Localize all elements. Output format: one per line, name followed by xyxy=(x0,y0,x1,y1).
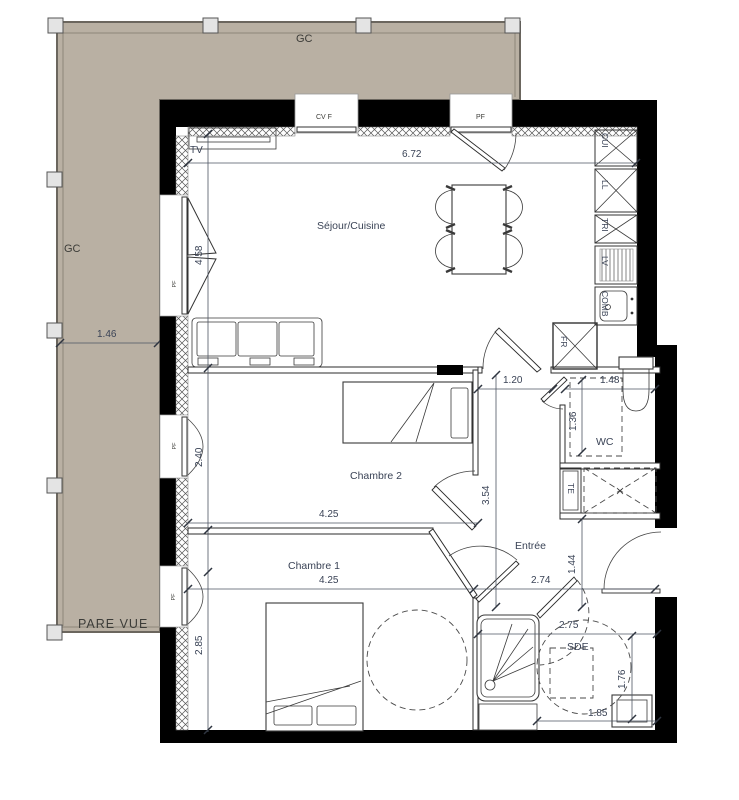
door-bedroom1-terrace: PF xyxy=(160,566,203,627)
dim-living-depth: 4.58 xyxy=(194,245,205,265)
dim-bedroom1-width: 4.25 xyxy=(319,575,339,586)
wall-bedroom2-bedroom1 xyxy=(188,528,433,534)
insulation-hatch xyxy=(358,127,450,136)
door-bedroom1-label: PF xyxy=(171,593,177,601)
door-swing-arc xyxy=(449,546,517,560)
door-leaf xyxy=(451,129,505,171)
door-leaf-wc xyxy=(541,377,567,402)
kitchen-unit-ll: LL xyxy=(595,169,637,212)
door-leaf-bedroom1 xyxy=(476,561,519,602)
dim-hall-depth: 3.54 xyxy=(481,485,492,505)
kitchen-cui-label: CUI xyxy=(600,133,610,148)
fridge: FR xyxy=(553,323,597,369)
dim-wc-depth: 1.36 xyxy=(568,411,579,431)
room-label-wc: WC xyxy=(596,436,614,448)
entry-storage: TE xyxy=(560,468,656,513)
dim-shower-width: 2.75 xyxy=(559,620,579,631)
svg-text:1.46: 1.46 xyxy=(97,329,117,340)
water-heater-label: TE xyxy=(566,483,576,494)
wall-diagonal-bedroom1 xyxy=(429,529,477,598)
dim-wc-width: 1.48 xyxy=(600,375,620,386)
wall-right-lower xyxy=(655,595,677,743)
dim-bedroom1-depth: 2.85 xyxy=(194,635,205,655)
wall-wc-left xyxy=(560,405,565,465)
window-living-label: PF xyxy=(172,280,178,288)
window-cvf-label: CV F xyxy=(316,114,332,121)
dim-living-width: 6.72 xyxy=(402,149,422,160)
bedroom1-turning-circle xyxy=(367,610,467,710)
floor-plan-drawing: GC GC PARE VUE 1.46 xyxy=(0,0,739,800)
kitchen-tri-label: TRI xyxy=(600,218,610,232)
wall-pier xyxy=(437,365,463,375)
insulation-hatch xyxy=(512,127,637,136)
floor-plan-page: GC GC PARE VUE 1.46 xyxy=(0,0,739,800)
wall-left xyxy=(160,100,176,195)
dim-entry-depth: 1.44 xyxy=(567,554,578,574)
terrace-label-pare-vue: PARE VUE xyxy=(78,617,148,631)
door-pf-top: PF xyxy=(450,94,516,171)
kitchen-comb-label: COMB xyxy=(600,291,610,317)
terrace-label-top: GC xyxy=(296,33,313,45)
bed-bedroom1 xyxy=(266,603,363,731)
kitchen-unit-lv: LV xyxy=(595,246,637,284)
terrace-post xyxy=(203,18,218,33)
terrace-post xyxy=(48,18,63,33)
window-bedroom2-label: PF xyxy=(172,442,178,450)
kitchen-unit-tri: TRI xyxy=(595,215,637,243)
kitchen-lv-label: LV xyxy=(600,256,610,266)
terrace-label-left: GC xyxy=(64,243,81,255)
door-swing-arc xyxy=(434,471,475,487)
wall-left xyxy=(160,316,176,415)
interior-doors xyxy=(432,328,677,665)
wall-stub xyxy=(478,367,482,373)
window-bedroom2: PF xyxy=(160,415,203,478)
room-label-bedroom2: Chambre 2 xyxy=(350,470,402,482)
wall-bedroom2-hall xyxy=(473,370,478,475)
wall-right-upper xyxy=(637,100,657,350)
wall-right-lower xyxy=(655,357,677,530)
room-label-sde: SDE xyxy=(567,641,589,653)
dim-shower-bottom: 1.85 xyxy=(588,708,608,719)
wall-left xyxy=(160,478,176,566)
terrace-post xyxy=(47,625,62,640)
door-leaf-living-entry xyxy=(495,328,541,372)
wall-left xyxy=(160,627,176,737)
dim-bedroom2-width: 4.25 xyxy=(319,509,339,520)
terrace-post xyxy=(505,18,520,33)
tv-label: TV xyxy=(190,145,203,156)
insulation-hatch xyxy=(176,316,188,415)
water-heater: TE xyxy=(560,468,581,513)
wall-right-jog xyxy=(637,345,677,357)
door-swing-arc xyxy=(504,133,516,170)
door-swing-arc xyxy=(483,330,497,369)
toilet-bowl xyxy=(623,369,649,411)
dim-entry-width: 2.74 xyxy=(531,575,551,586)
terrace-post xyxy=(47,323,62,338)
insulation-hatch xyxy=(176,478,188,566)
room-label-living: Séjour/Cuisine xyxy=(317,220,385,232)
closet-dashed xyxy=(584,468,656,513)
shower-access xyxy=(479,704,537,730)
terrace-post xyxy=(356,18,371,33)
window-cvf: CV F xyxy=(295,94,358,133)
sde-clearance-dashed xyxy=(550,648,593,698)
terrace-post xyxy=(47,172,62,187)
terrace-post xyxy=(47,478,62,493)
wall-bottom xyxy=(160,730,677,743)
wall-closet-south xyxy=(560,513,660,519)
kitchen-units: CUI LL TRI LV COMB FR xyxy=(553,130,637,369)
kitchen-unit-comb-sink: COMB xyxy=(595,287,637,325)
sofa xyxy=(192,318,322,367)
door-leaf-bedroom2 xyxy=(432,486,476,530)
bed-bedroom2 xyxy=(343,382,472,443)
door-pf-top-label: PF xyxy=(476,114,485,121)
room-label-bedroom1: Chambre 1 xyxy=(288,560,340,572)
dim-hall-pass: 1.20 xyxy=(503,375,523,386)
room-label-entry: Entrée xyxy=(515,540,546,552)
dim-shower-depth: 1.76 xyxy=(617,669,628,689)
wall-living-bedroom2 xyxy=(188,367,478,373)
dim-bedroom2-depth: 2.40 xyxy=(194,447,205,467)
toilet-cistern xyxy=(619,357,653,369)
kitchen-ll-label: LL xyxy=(600,180,610,190)
door-swing-arc xyxy=(604,532,661,589)
furniture: TV xyxy=(189,128,523,731)
fridge-label: FR xyxy=(559,336,569,347)
wall-top xyxy=(160,100,657,127)
insulation-hatch xyxy=(176,627,188,730)
dining-table xyxy=(436,185,523,274)
